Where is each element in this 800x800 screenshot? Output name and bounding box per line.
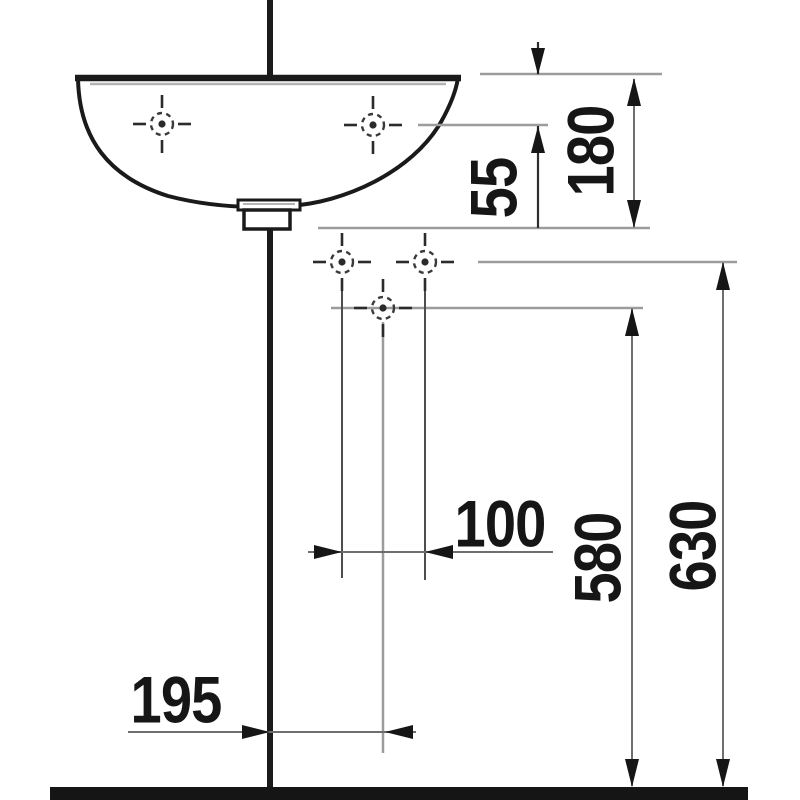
dim-label-195: 195: [130, 663, 221, 736]
washbasin-dimension-drawing: 55 180 100 580 630 195: [0, 0, 800, 800]
arrowhead-down-icon: [716, 759, 730, 787]
dimension-630: 630: [656, 262, 730, 787]
arrowhead-up-icon: [531, 126, 545, 153]
arrowhead-up-icon: [625, 308, 639, 336]
arrowhead-left-icon: [385, 725, 413, 739]
dim-label-630: 630: [656, 500, 729, 591]
fixing-hole-marker-right: [396, 233, 454, 291]
fixing-hole-marker-left: [313, 233, 371, 291]
arrowhead-right-icon: [242, 725, 270, 739]
dim-label-180: 180: [554, 105, 627, 196]
dim-label-100: 100: [454, 487, 545, 560]
dim-label-580: 580: [561, 512, 634, 603]
basin-bowl-outline: [78, 78, 458, 207]
outlet-hole-marker: [354, 279, 412, 337]
drain-body: [244, 210, 290, 229]
arrowhead-down-icon: [625, 759, 639, 787]
arrowhead-down-icon: [627, 200, 641, 228]
arrowhead-down-icon: [531, 48, 545, 75]
floor-bar: [50, 787, 748, 800]
arrowhead-up-icon: [627, 78, 641, 106]
dimension-580: 580: [561, 308, 639, 787]
dimension-100: 100: [308, 487, 553, 560]
dimension-55: 55: [457, 42, 545, 228]
arrowhead-right-icon: [314, 545, 342, 559]
dimension-180: 180: [554, 78, 641, 228]
arrowhead-left-icon: [425, 545, 453, 559]
dim-label-55: 55: [457, 158, 530, 219]
technical-drawing-canvas: 55 180 100 580 630 195: [0, 0, 800, 800]
arrowhead-up-icon: [716, 262, 730, 290]
